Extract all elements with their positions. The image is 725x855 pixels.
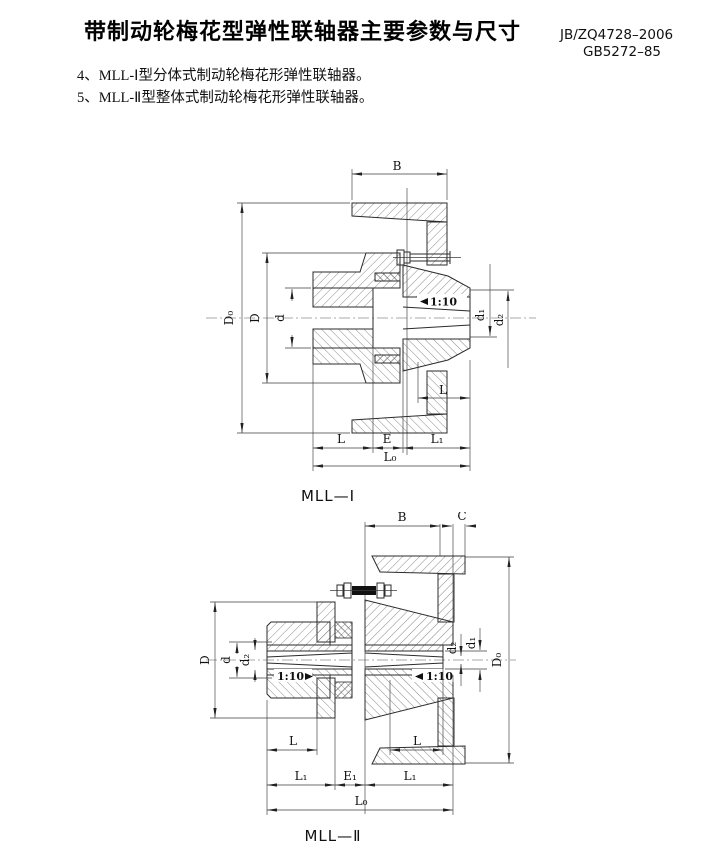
standard-number-1: JB/ZQ4728–2006 [560, 27, 673, 43]
dim-label-d2-right: d₂ [445, 642, 459, 655]
document-page: 带制动轮梅花型弹性联轴器主要参数与尺寸 JB/ZQ4728–2006 GB527… [0, 0, 725, 855]
dim-label-l: L [337, 432, 345, 446]
taper-label: 1:10 [430, 296, 457, 309]
taper-callout-mll1: 1:10 [417, 294, 467, 309]
note-mll2-type: 5、MLL-Ⅱ型整体式制动轮梅花形弹性联轴器。 [77, 86, 373, 107]
dim-B: B [352, 159, 447, 200]
taper-callout-left: 1:10 [274, 669, 313, 683]
dim-B2: B [365, 512, 440, 556]
dim-label-d-small-2: d [219, 656, 233, 664]
dim-label-l0: L₀ [384, 450, 397, 464]
dim-label-d-small: d [273, 314, 287, 322]
dim-label-d1: d₁ [473, 309, 487, 322]
taper-label-right: 1:10 [426, 670, 453, 683]
dim-label-l-right: L [413, 734, 421, 748]
dim-label-b: B [393, 159, 402, 173]
dim-L0-2: L₀ [267, 794, 453, 810]
dim-label-d2: d₂ [492, 314, 506, 327]
taper-callout-right: 1:10 [412, 669, 456, 683]
dim-label-l0-2: L₀ [355, 794, 368, 808]
dim-label-l-left: L [289, 734, 297, 748]
dim-label-b2: B [398, 512, 407, 524]
taper-label-left: 1:10 [277, 670, 304, 683]
dim-L0: L₀ [313, 450, 470, 466]
figure-mll1-caption: MLL—Ⅰ [278, 487, 378, 505]
figure-mll2-caption: MLL—Ⅱ [283, 827, 383, 845]
dim-label-d0-cap: D₀ [222, 311, 236, 326]
dim-label-l1: L₁ [431, 432, 444, 446]
dim-label-e1: E₁ [343, 769, 357, 783]
dim-label-d1-2: d₁ [464, 637, 478, 650]
dim-label-d0-2: D₀ [490, 653, 504, 668]
figure-mll2-drawing: 1:10 1:10 B C d₂ [200, 512, 525, 818]
dim-label-l1-left: L₁ [295, 769, 308, 783]
dim-label-d-cap-2: D [200, 655, 212, 665]
dim-label-l1-right: L₁ [404, 769, 417, 783]
dim-d2: d₂ [470, 290, 514, 368]
page-title: 带制动轮梅花型弹性联轴器主要参数与尺寸 [84, 14, 544, 46]
figure-mll1-drawing: 1:10 B D₀ D d d₁ [200, 155, 540, 485]
standard-number-2: GB5272–85 [583, 44, 661, 60]
dim-label-c: C [457, 512, 466, 523]
dim-label-d2-left: d₂ [238, 654, 252, 667]
dim-label-l-hub: L [439, 383, 447, 397]
flange-bolt-2 [330, 583, 397, 598]
note-mll1-type: 4、MLL-Ⅰ型分体式制动轮梅花形弹性联轴器。 [77, 64, 370, 85]
dim-label-d-cap: D [248, 313, 262, 323]
coupling-section-mll2 [267, 556, 465, 660]
dim-label-e: E [383, 432, 392, 446]
dim-L-left: L [267, 700, 317, 815]
